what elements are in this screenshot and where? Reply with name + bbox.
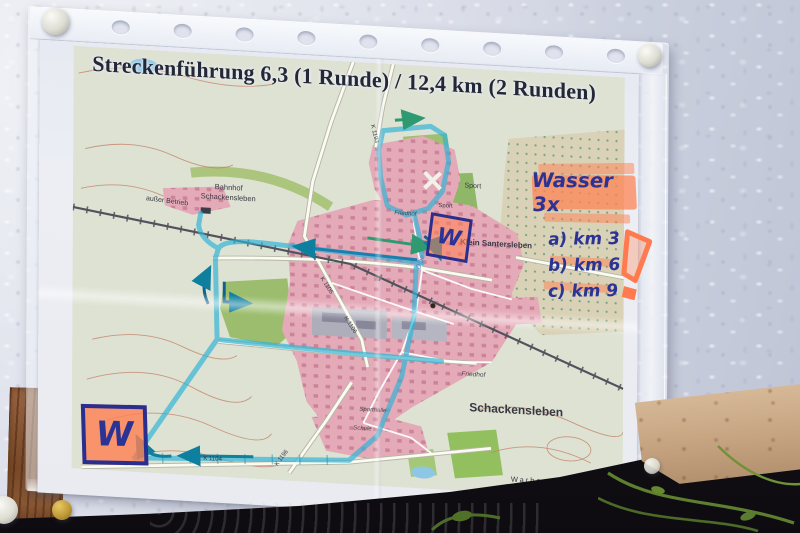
leaf-cluster bbox=[428, 504, 504, 533]
plastic-sleeve: Bahnhof Schackensleben außer Betrieb Kle… bbox=[25, 6, 668, 528]
brass-pin bbox=[52, 500, 72, 520]
pushpin-top-right bbox=[638, 44, 661, 67]
punch-hole bbox=[607, 48, 625, 63]
punch-hole bbox=[545, 45, 563, 60]
punch-hole bbox=[483, 41, 501, 56]
label-schule: Schule bbox=[353, 425, 372, 432]
water-station-letter: W bbox=[436, 223, 463, 252]
water-station-letter: W bbox=[95, 414, 134, 455]
label-k1104: K 1104 bbox=[203, 456, 222, 463]
punch-hole bbox=[112, 20, 130, 35]
wasser-annotation: Wasser 3x bbox=[532, 175, 637, 210]
map-svg: Bahnhof Schackensleben außer Betrieb Kle… bbox=[72, 46, 625, 500]
punch-hole bbox=[359, 34, 377, 49]
woods bbox=[220, 275, 294, 347]
wasser-text: Wasser 3x bbox=[531, 168, 637, 217]
km-annotation-b: b) km 6 bbox=[547, 255, 621, 276]
punch-hole bbox=[236, 27, 254, 42]
photo-scene: Bahnhof Schackensleben außer Betrieb Kle… bbox=[0, 0, 800, 533]
course-map: Bahnhof Schackensleben außer Betrieb Kle… bbox=[72, 46, 625, 500]
punch-hole bbox=[174, 23, 192, 38]
label-sport-2: Sport bbox=[438, 203, 453, 210]
km-annotation-c: c) km 9 bbox=[547, 281, 619, 302]
label-bahnhof: Bahnhof bbox=[215, 182, 244, 193]
pushpin-top-left bbox=[42, 8, 69, 35]
label-sport: Sport bbox=[464, 182, 481, 190]
punch-hole bbox=[297, 31, 315, 46]
course-map-sheet: Bahnhof Schackensleben außer Betrieb Kle… bbox=[37, 40, 638, 527]
label-friedhof-bottom: Friedhof bbox=[461, 371, 486, 379]
km-annotation-a: a) km 3 bbox=[548, 229, 621, 250]
punch-hole bbox=[421, 38, 439, 53]
water-station-marker-top: W bbox=[426, 212, 473, 263]
vines bbox=[598, 428, 800, 533]
water-station-marker: W bbox=[81, 404, 149, 466]
